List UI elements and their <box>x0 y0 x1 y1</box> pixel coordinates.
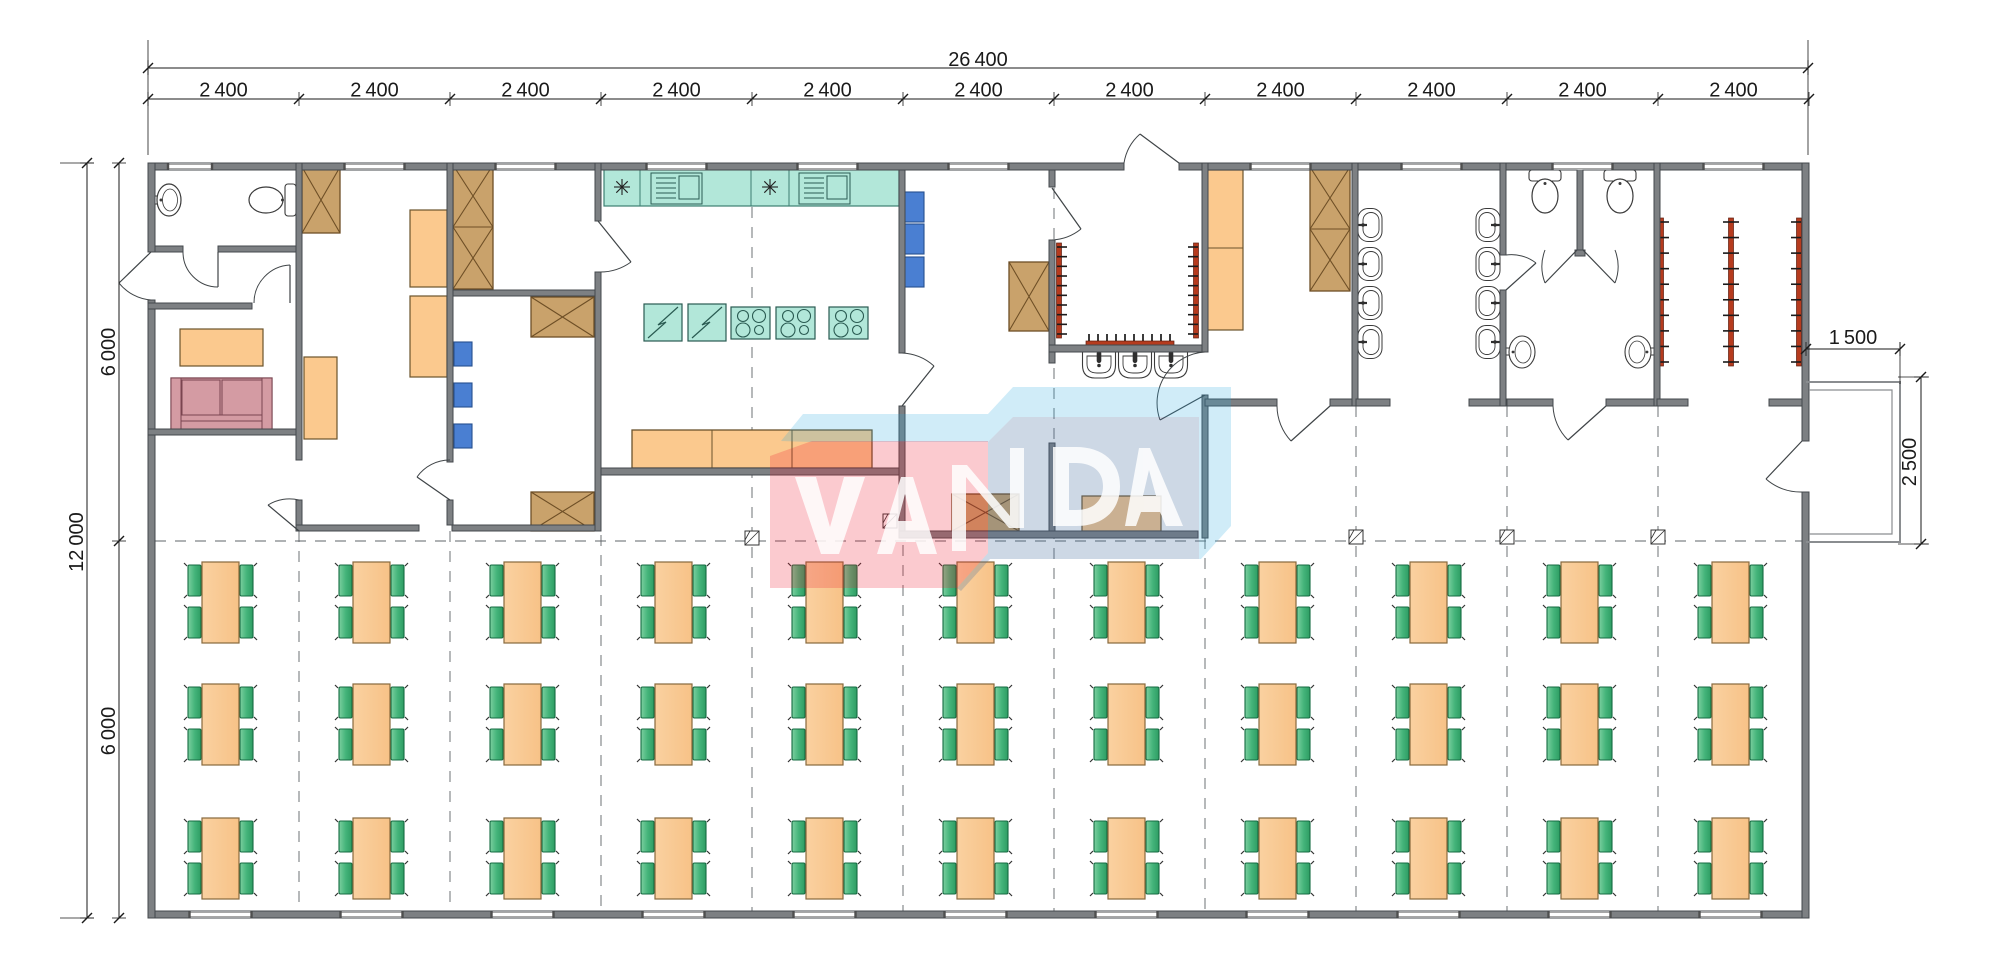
svg-text:2 400: 2 400 <box>1407 80 1456 102</box>
svg-text:2 400: 2 400 <box>1709 80 1758 102</box>
svg-text:2 400: 2 400 <box>803 80 852 102</box>
svg-text:6 000: 6 000 <box>98 707 120 756</box>
svg-text:26 400: 26 400 <box>948 49 1008 71</box>
svg-text:2 400: 2 400 <box>1558 80 1607 102</box>
svg-text:2 400: 2 400 <box>1105 80 1154 102</box>
svg-text:2 500: 2 500 <box>1899 438 1921 487</box>
svg-text:2 400: 2 400 <box>1256 80 1305 102</box>
svg-text:6 000: 6 000 <box>98 328 120 377</box>
svg-text:2 400: 2 400 <box>954 80 1003 102</box>
svg-text:12 000: 12 000 <box>66 512 88 572</box>
svg-text:1 500: 1 500 <box>1829 327 1878 349</box>
svg-text:2 400: 2 400 <box>501 80 550 102</box>
svg-text:2 400: 2 400 <box>652 80 701 102</box>
svg-text:2 400: 2 400 <box>350 80 399 102</box>
svg-text:2 400: 2 400 <box>199 80 248 102</box>
